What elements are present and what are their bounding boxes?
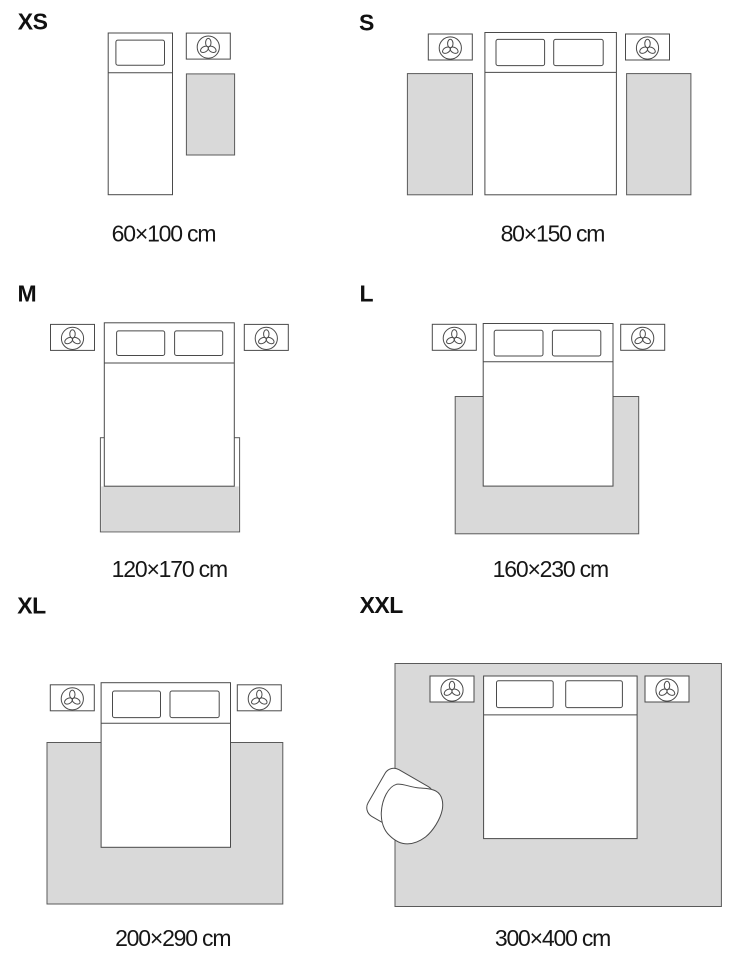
svg-text:S: S — [359, 10, 374, 36]
svg-text:XL: XL — [17, 593, 46, 619]
svg-text:60×100 cm: 60×100 cm — [112, 220, 216, 246]
svg-text:XS: XS — [18, 9, 48, 35]
svg-text:120×170 cm: 120×170 cm — [112, 556, 227, 582]
svg-text:80×150 cm: 80×150 cm — [501, 220, 605, 246]
svg-text:160×230 cm: 160×230 cm — [493, 556, 608, 582]
svg-text:L: L — [360, 281, 374, 307]
svg-text:300×400 cm: 300×400 cm — [495, 925, 610, 951]
svg-text:200×290 cm: 200×290 cm — [115, 925, 230, 951]
svg-text:XXL: XXL — [360, 592, 404, 618]
svg-text:M: M — [18, 281, 37, 307]
